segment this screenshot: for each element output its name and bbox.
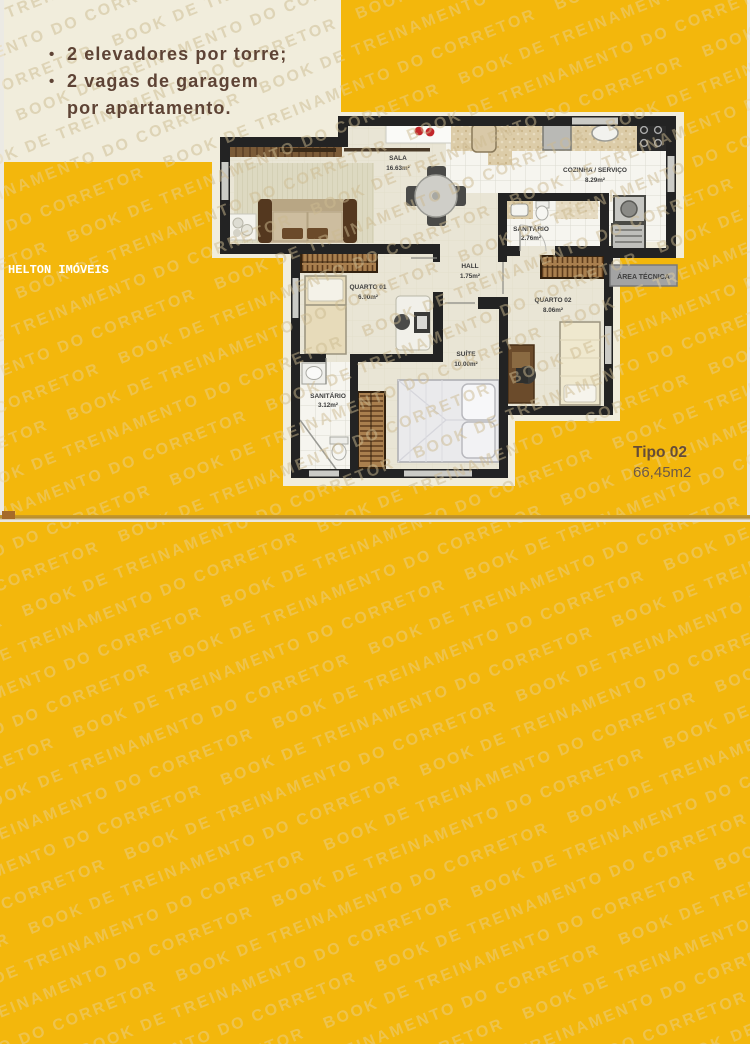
svg-text:10.00m²: 10.00m²	[454, 361, 477, 368]
svg-text:3.12m²: 3.12m²	[318, 402, 338, 409]
svg-text:1.75m²: 1.75m²	[460, 273, 480, 280]
svg-text:ÁREA TÉCNICA: ÁREA TÉCNICA	[617, 272, 670, 281]
svg-text:QUARTO 01: QUARTO 01	[349, 284, 386, 291]
svg-text:SALA: SALA	[389, 155, 407, 162]
svg-text:COZINHA / SERVIÇO: COZINHA / SERVIÇO	[563, 167, 627, 174]
svg-text:SUÍTE: SUÍTE	[456, 349, 476, 358]
svg-text:HALL: HALL	[461, 263, 478, 270]
svg-text:2.76m²: 2.76m²	[521, 235, 541, 242]
svg-text:QUARTO 02: QUARTO 02	[534, 297, 571, 304]
svg-text:SANITÁRIO: SANITÁRIO	[310, 391, 346, 400]
svg-text:8.06m²: 8.06m²	[543, 307, 563, 314]
svg-text:16.63m²: 16.63m²	[386, 165, 409, 172]
svg-text:8.29m²: 8.29m²	[585, 177, 605, 184]
svg-text:SANITÁRIO: SANITÁRIO	[513, 224, 549, 233]
svg-text:6.90m²: 6.90m²	[358, 294, 378, 301]
